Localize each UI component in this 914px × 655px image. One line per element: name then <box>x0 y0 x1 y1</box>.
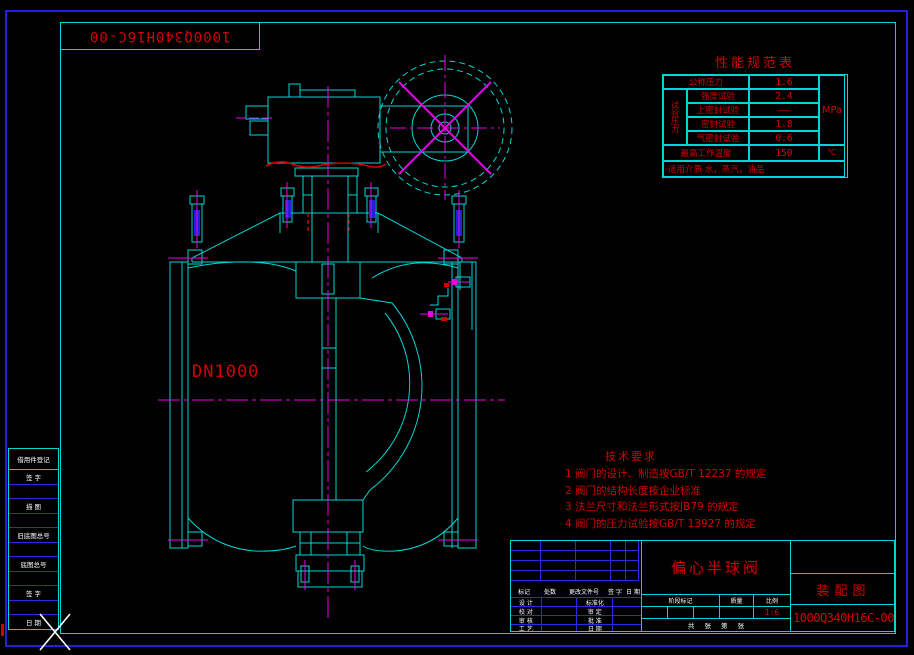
spec-label: 气密封试验 <box>687 131 749 145</box>
stage-header: 阶段标记 <box>642 595 720 607</box>
signature-row: 设 计 标准化 <box>511 597 641 606</box>
scale-value: 1:6 <box>754 607 790 619</box>
title-block-right: 装配图 1000Q340H16C-00 <box>791 541 896 631</box>
drawing-number: 1000Q340H16C-00 <box>791 605 896 631</box>
sheet-count-row: 共 张 第 张 <box>642 619 790 631</box>
spec-label: 上密封试验 <box>687 103 749 117</box>
title-block-middle: 偏心半球阀 阶段标记 质量 比例 1:6 共 张 第 张 <box>641 541 791 631</box>
spec-value: 1.6 <box>749 75 819 89</box>
rev-header: 处数 <box>537 585 563 597</box>
stage-header: 比例 <box>754 595 790 607</box>
signature-row: 工 艺 日 期 <box>511 624 641 631</box>
spec-value: 0.6 <box>749 131 819 145</box>
spec-label: 强度试验 <box>687 89 749 103</box>
nominal-diameter-label: DN1000 <box>192 362 259 382</box>
sig-label: 审 定 <box>577 606 613 615</box>
tech-requirement-item: 1 阀门的设计、制造按GB/T 12237 的规定 <box>565 466 855 483</box>
sheet-type-label: 装配图 <box>791 574 896 605</box>
cad-canvas[interactable]: 1000Q340H16C-00 借用件登记 签 字 描 图 旧底图总号 底图总号… <box>0 0 914 655</box>
spec-temp-unit: ℃ <box>819 145 845 161</box>
tech-requirement-item: 3 法兰尺寸和法兰形式按JB79 的规定 <box>565 499 855 516</box>
spec-label: 密封试验 <box>687 117 749 131</box>
spec-media-row: 适用介质 水，蒸汽，油品 <box>663 161 845 177</box>
signature-row: 审 核 批 准 <box>511 615 641 624</box>
spec-temp-value: 150 <box>749 145 819 161</box>
spec-label: 公称压力 <box>663 75 749 89</box>
sig-label: 审 核 <box>511 615 542 624</box>
spec-group-label: 试验压力 <box>663 89 687 145</box>
stage-header-row: 阶段标记 质量 比例 <box>642 595 790 607</box>
sig-label: 日 期 <box>577 624 613 631</box>
revision-header-row: 标记 处数 更改文件号 签 字 日 期 <box>511 585 641 597</box>
signature-row: 校 对 审 定 <box>511 606 641 615</box>
spec-value: 1.8 <box>749 117 819 131</box>
sig-label: 标准化 <box>577 597 613 606</box>
rev-header: 更改文件号 <box>563 585 605 597</box>
fold-mark-x <box>40 614 70 650</box>
spec-table-title: 性能规范表 <box>662 52 848 71</box>
rev-header: 日 期 <box>625 585 641 597</box>
tech-requirements-title: 技术要求 <box>605 448 855 464</box>
spec-value: —— <box>749 103 819 117</box>
product-name: 偏心半球阀 <box>642 541 790 595</box>
performance-spec-table: 性能规范表 公称压力 1.6 MPa 试验压力 强度试验 2.4 上密封试验 —… <box>662 52 848 178</box>
tech-requirement-item: 4 阀门的压力试验按GB/T 13927 的规定 <box>565 516 855 533</box>
stage-header: 质量 <box>720 595 754 607</box>
title-block: 标记 处数 更改文件号 签 字 日 期 设 计 标准化 校 对 审 定 审 核 … <box>510 540 895 632</box>
rev-header: 签 字 <box>605 585 625 597</box>
spec-value: 2.4 <box>749 89 819 103</box>
tech-requirements: 技术要求 1 阀门的设计、制造按GB/T 12237 的规定 2 阀门的结构长度… <box>565 448 855 532</box>
revision-grid <box>511 541 641 585</box>
sig-label: 设 计 <box>511 597 542 606</box>
title-block-empty-cell <box>791 541 896 574</box>
sig-label: 批 准 <box>577 615 613 624</box>
sig-label: 工 艺 <box>511 624 542 631</box>
stage-mark-row: 1:6 <box>642 607 790 619</box>
sig-label: 校 对 <box>511 606 542 615</box>
tech-requirement-item: 2 阀门的结构长度按企业标准 <box>565 483 855 500</box>
spec-pressure-unit: MPa <box>819 75 845 145</box>
spec-temp-label: 最高工作温度 <box>663 145 749 161</box>
rev-header: 标记 <box>511 585 537 597</box>
